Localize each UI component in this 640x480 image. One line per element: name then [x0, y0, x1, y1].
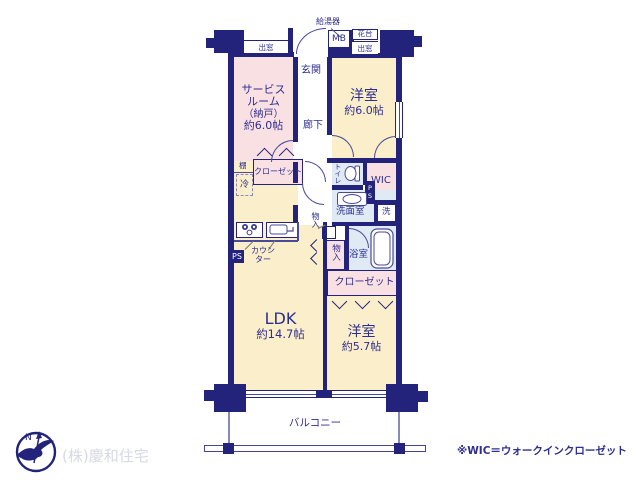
- storage-lower-label: 物入: [330, 244, 340, 268]
- stove-box: [236, 222, 263, 238]
- wall-washroom-bottom: [332, 222, 396, 226]
- balcony-railing: [204, 445, 426, 452]
- meter-box-label: MB: [328, 32, 350, 46]
- balcony-window-ldk: [246, 390, 316, 398]
- wall-entrance-left: [288, 28, 293, 57]
- service-room-label: サービス ルーム （納戸） 約6.0帖: [234, 82, 293, 134]
- corner-top-right: [380, 30, 414, 57]
- balcony-label: バルコニー: [228, 417, 402, 431]
- wall-toilet-bottom: [332, 185, 363, 190]
- bathroom-label: 浴室: [349, 250, 368, 261]
- ldk-label: LDK 約14.7帖: [234, 302, 327, 348]
- toilet-icon: [344, 164, 361, 184]
- counter-edge: [234, 240, 298, 242]
- counter-edge-side: [297, 222, 299, 241]
- counter-label: カウン ター: [247, 246, 279, 266]
- corner-bottom-left: [214, 384, 246, 412]
- ps-kitchen-box: PS: [230, 250, 244, 263]
- vanity-sink-icon: [337, 192, 367, 206]
- washroom-label: 洗面室: [336, 207, 365, 218]
- closet-service-label: クローゼット: [253, 165, 303, 179]
- bathtub-icon: [370, 228, 394, 269]
- shelf-label: 棚: [239, 162, 247, 170]
- corner-bottom-left-wing: [204, 390, 214, 401]
- company-logo: N: [13, 427, 59, 475]
- wic-note: ※WIC＝ウォークインクローゼット: [457, 446, 627, 458]
- floor-plan: PS PS サービス ルーム （納戸） 約6.0帖 洋室 約6.0帖 LDK 約…: [0, 0, 640, 480]
- wic-label: WIC: [371, 175, 391, 186]
- bay-window-left-label: 出窓: [244, 43, 288, 53]
- balcony-railing-post-right: [394, 443, 405, 454]
- window-bedroom6-right: [395, 102, 403, 138]
- fridge-label: 冷: [236, 174, 253, 196]
- flower-stand-label: 花台: [352, 29, 378, 40]
- balcony-side-right: [398, 412, 400, 446]
- corner-top-left-wing: [206, 38, 214, 48]
- corner-top-left: [214, 30, 244, 53]
- shelf-line: [234, 172, 253, 173]
- balcony-side-left: [228, 412, 230, 446]
- corridor-label: 廊下: [303, 120, 323, 131]
- balcony-railing-post-left: [223, 443, 234, 454]
- bedroom6-label: 洋室 約6.0帖: [332, 84, 396, 122]
- bay-window-right-label: 出窓: [352, 44, 378, 54]
- washer-label: 洗: [382, 208, 391, 218]
- corner-bottom-right: [386, 384, 418, 412]
- corner-top-right-wing: [414, 36, 422, 47]
- stove-icon: [238, 223, 262, 236]
- bedroom57-label: 洋室 約5.7帖: [327, 318, 396, 360]
- ps-kitchen-label: PS: [232, 252, 242, 261]
- storage-upper-label: 物入: [310, 212, 319, 238]
- toilet-label: トイレ: [333, 163, 341, 185]
- entrance-label: 玄関: [301, 65, 321, 76]
- corner-bottom-right-wing: [418, 391, 428, 402]
- water-heater-label: 給湯器: [316, 18, 340, 27]
- north-label: N: [25, 433, 32, 443]
- wall-corridor-left-a: [293, 57, 298, 142]
- kitchen-sink-icon: [267, 223, 296, 236]
- kitchen-sink-box: [266, 222, 298, 238]
- company-name: (株)慶和住宅: [62, 448, 149, 465]
- closet-main-label: クローゼット: [327, 276, 402, 290]
- balcony-window-bedroom57: [332, 390, 386, 398]
